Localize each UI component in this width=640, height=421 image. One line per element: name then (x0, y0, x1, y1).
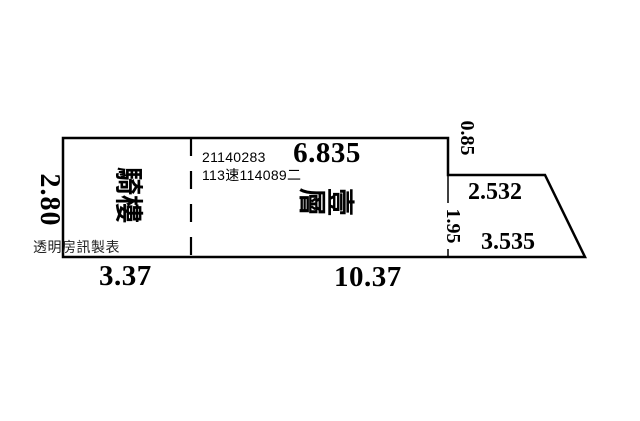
case-number: 113速114089二 (202, 168, 301, 182)
dimension-bottom-left: 3.37 (99, 262, 152, 291)
dimension-top-width: 6.835 (282, 139, 372, 168)
dimension-annex-bottom: 3.535 (481, 230, 535, 254)
watermark-text: 透明房訊製表 (33, 240, 120, 254)
floor-plan-canvas: 21140283 113速114089二 6.835 2.80 騎樓 壹層 0.… (0, 0, 640, 421)
registration-number: 21140283 (202, 150, 266, 164)
dimension-right-upper: 0.85 (455, 114, 477, 162)
dimension-left-height: 2.80 (33, 164, 63, 236)
dimension-bottom-middle: 10.37 (334, 263, 402, 292)
room-label-arcade: 騎樓 (110, 163, 142, 227)
room-label-first-floor: 壹層 (295, 185, 355, 215)
dimension-annex-top: 2.532 (468, 180, 522, 204)
dimension-right-lower: 1.95 (441, 203, 463, 249)
